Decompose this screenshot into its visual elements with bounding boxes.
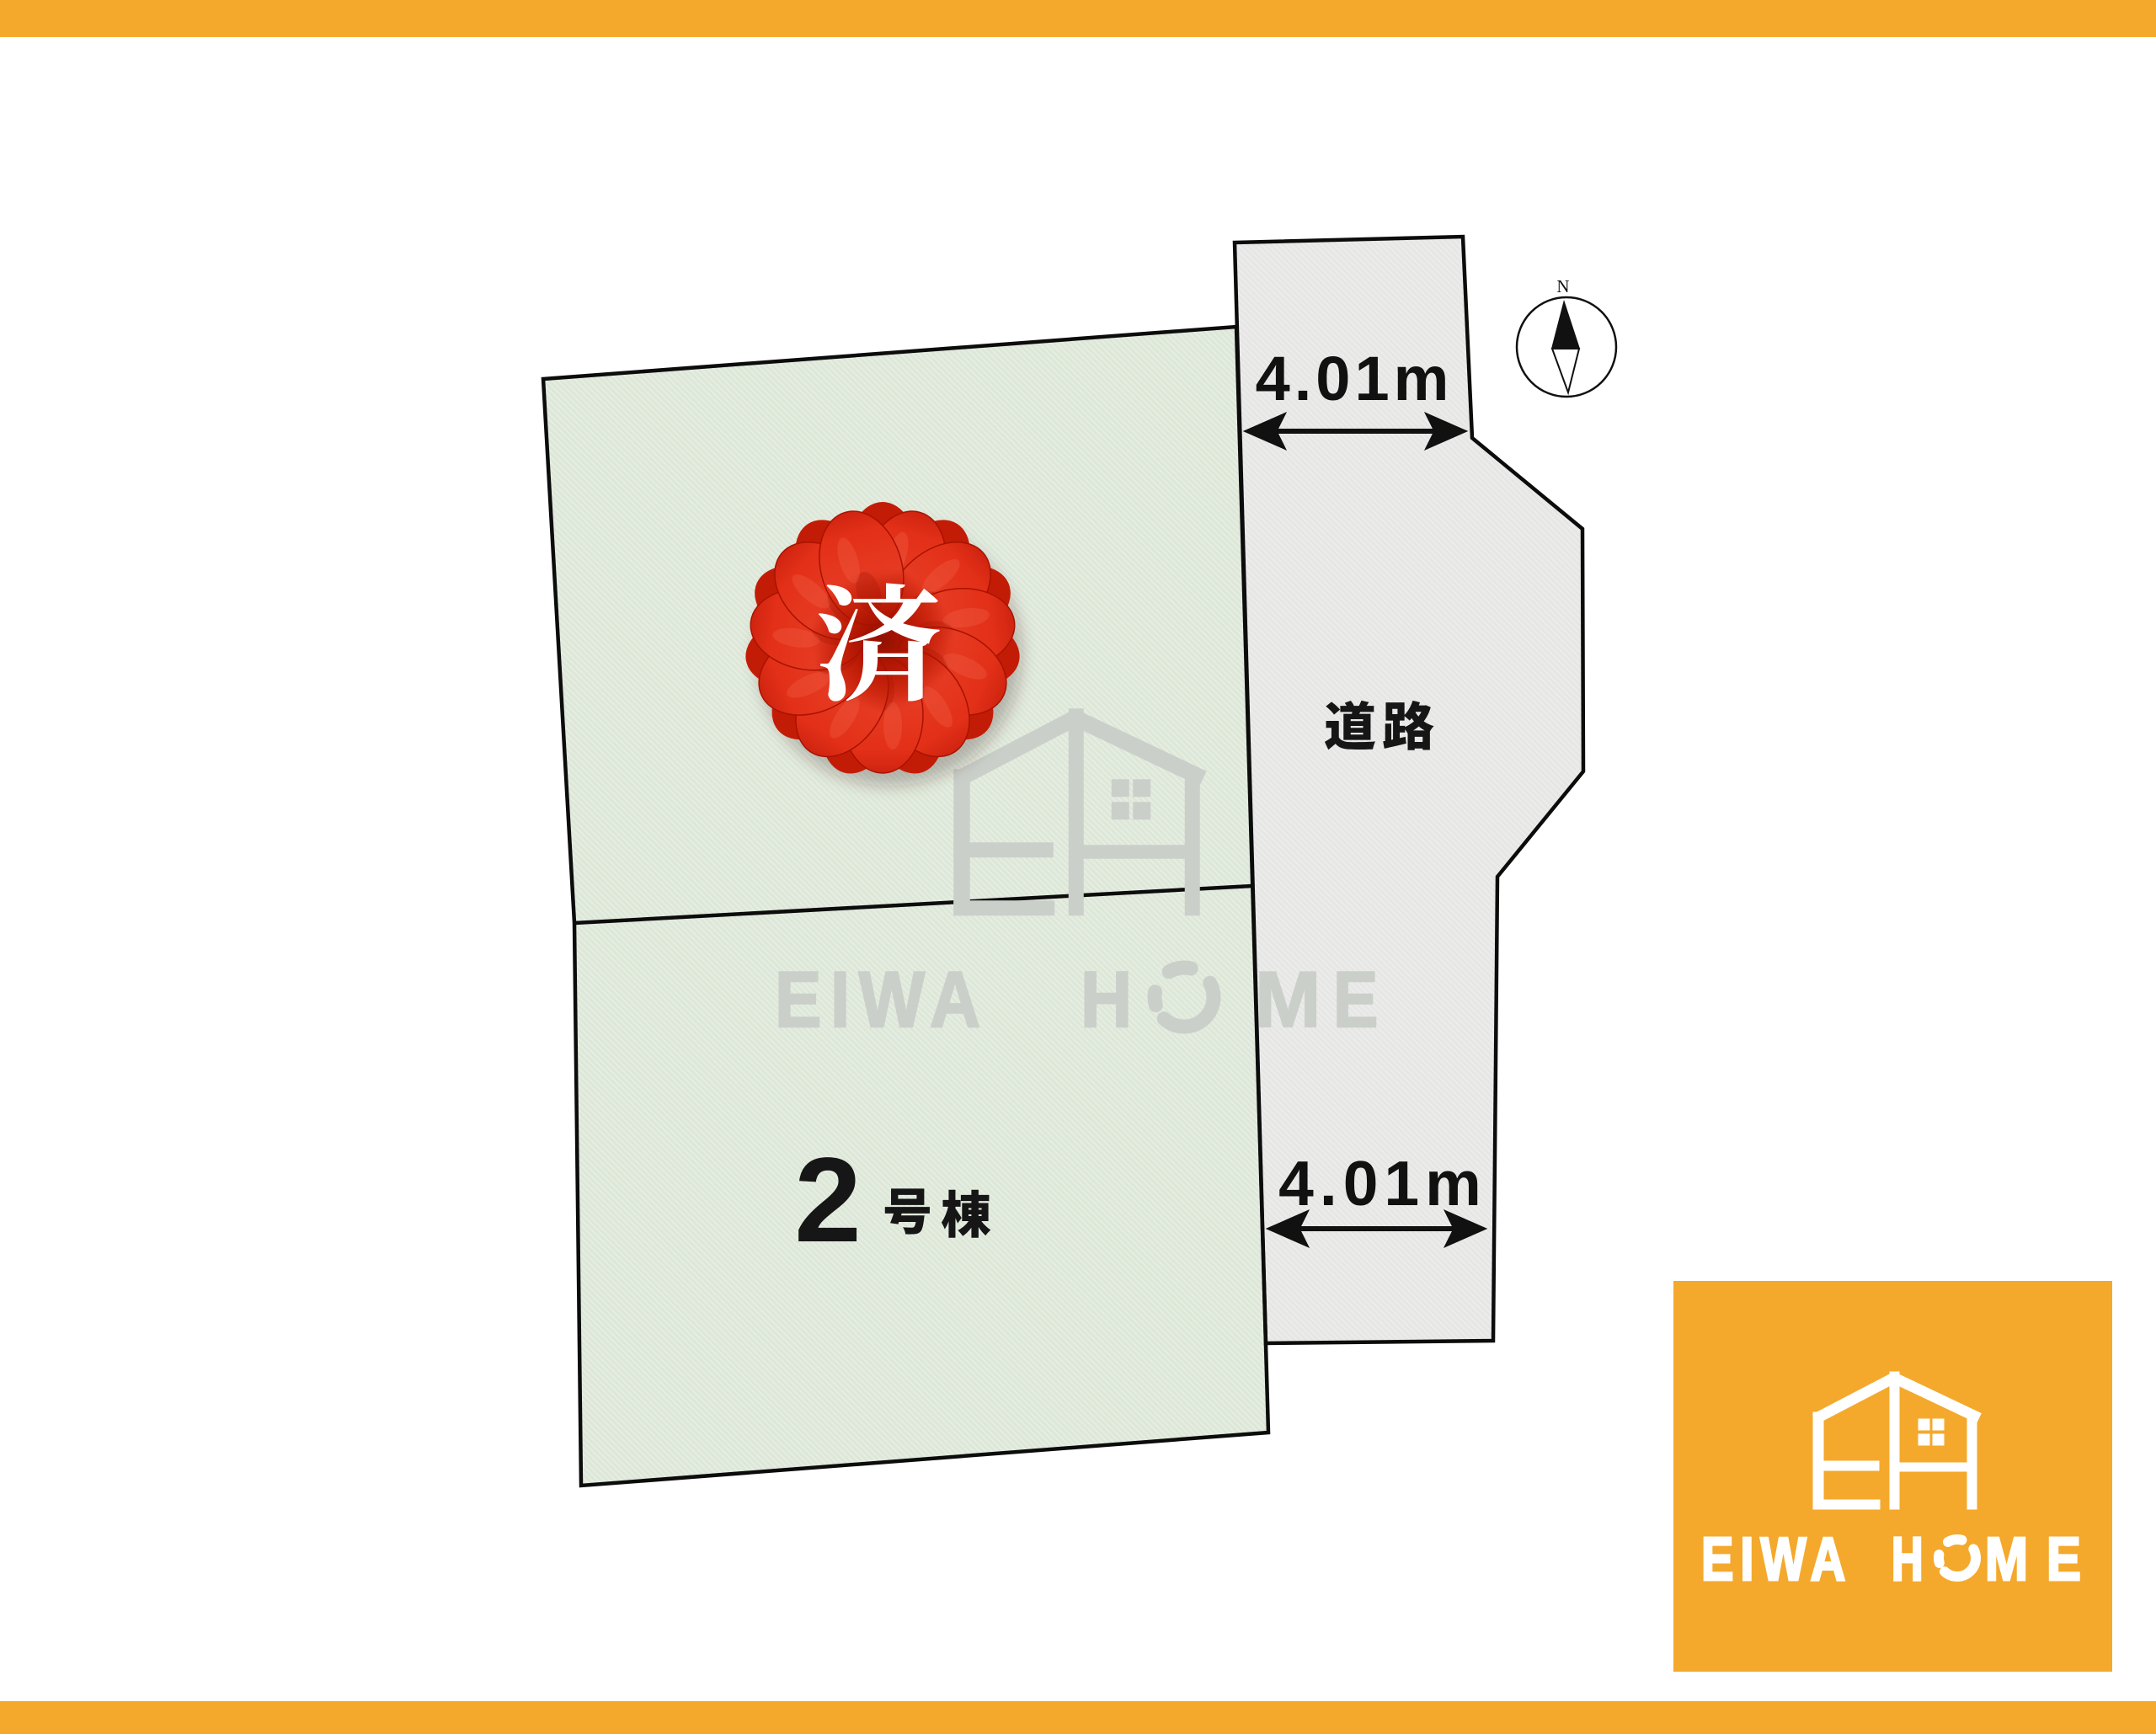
svg-text:H: H — [1892, 1526, 1923, 1593]
svg-text:2: 2 — [794, 1134, 862, 1267]
svg-text:M: M — [1985, 1526, 2028, 1593]
svg-text:4.01m: 4.01m — [1278, 1148, 1487, 1219]
svg-text:N: N — [1556, 276, 1569, 296]
svg-text:4.01m: 4.01m — [1256, 344, 1454, 413]
svg-text:H: H — [1081, 955, 1132, 1043]
svg-text:M: M — [1255, 955, 1321, 1043]
svg-text:E: E — [2047, 1526, 2081, 1593]
svg-text:E: E — [1333, 956, 1378, 1044]
svg-text:EIWA: EIWA — [1701, 1525, 1852, 1593]
svg-text:EIWA: EIWA — [775, 955, 989, 1043]
